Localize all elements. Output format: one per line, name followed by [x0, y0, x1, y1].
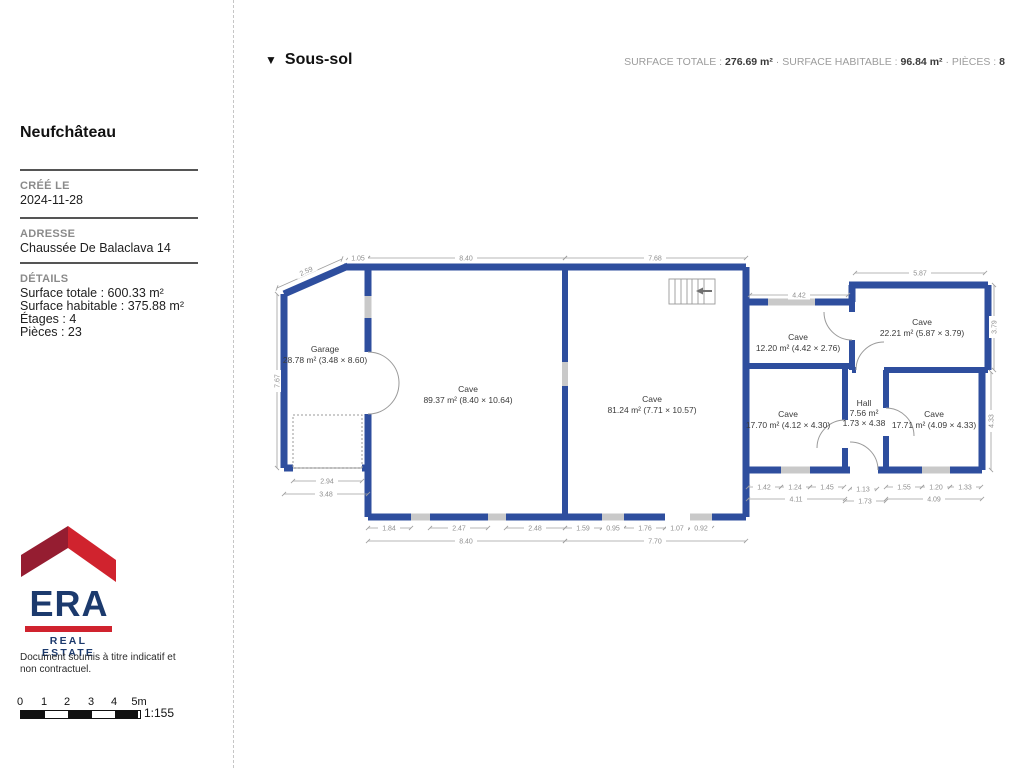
door-arcs [293, 312, 914, 470]
floor-title: Sous-sol [285, 51, 353, 69]
floor-section-toggle[interactable]: ▼ Sous-sol [265, 51, 352, 69]
room-area: 89.37 m² (8.40 × 10.64) [423, 395, 512, 405]
room-area: 28.78 m² (3.48 × 8.60) [283, 355, 368, 365]
dimension-label: 3.48 [319, 492, 333, 499]
created-value: 2024-11-28 [20, 193, 83, 207]
details-label: DÉTAILS [20, 273, 68, 285]
stat-pieces: PIÈCES : 8 [943, 56, 1005, 68]
dimension-label: 7.70 [648, 539, 662, 546]
dimension-label: 1.84 [382, 526, 396, 533]
era-logo-bar [25, 626, 112, 632]
dimension-label: 4.11 [789, 497, 802, 504]
dimension-label: 1.55 [897, 485, 911, 492]
sidebar: Neufchâteau CRÉÉ LE 2024-11-28 ADRESSE C… [0, 0, 233, 768]
dimension-label: 8.40 [459, 256, 473, 263]
dimension-label: 2.48 [528, 526, 542, 533]
dimension-label: 4.09 [927, 497, 941, 504]
dimension-label: 4.33 [989, 414, 996, 428]
address-label: ADRESSE [20, 228, 75, 240]
address-value: Chaussée De Balaclava 14 [20, 241, 171, 255]
stat-surface-totale: SURFACE TOTALE : 276.69 m² [624, 56, 773, 68]
floor-stats: SURFACE TOTALE : 276.69 m²SURFACE HABITA… [624, 56, 1005, 68]
divider [20, 169, 198, 171]
stairs-icon [669, 279, 715, 304]
room-name: Hall [857, 398, 872, 408]
detail-pieces: Pièces : 23 [20, 326, 184, 339]
room-labels: Garage 28.78 m² (3.48 × 8.60) Cave 89.37… [283, 317, 977, 430]
dimension-label: 1.20 [929, 485, 943, 492]
scale-tick: 4 [111, 696, 117, 708]
dimension-label: 0.95 [606, 526, 620, 533]
sidebar-separator [233, 0, 234, 768]
dimension-label: 0.92 [694, 526, 708, 533]
scale-tick: 2 [64, 696, 70, 708]
room-area: 17.71 m² (4.09 × 4.33) [892, 420, 977, 430]
parking-outline [293, 415, 362, 468]
room-area: 81.24 m² (7.71 × 10.57) [607, 405, 696, 415]
details-list: Surface totale : 600.33 m² Surface habit… [20, 287, 184, 339]
dimension-label: 5.87 [913, 271, 927, 278]
dimension-label: 1.07 [670, 526, 684, 533]
dimension-labels: 2.59 1.05 8.40 7.68 4.42 5.87 7.67 3.79 … [272, 254, 999, 546]
dimension-label: 1.24 [788, 485, 802, 492]
dimension-label: 2.94 [320, 479, 334, 486]
created-label: CRÉÉ LE [20, 180, 70, 192]
dimension-label: 1.73 [858, 499, 872, 506]
property-title: Neufchâteau [20, 124, 116, 142]
stat-surface-habitable: SURFACE HABITABLE : 96.84 m² [773, 56, 943, 68]
dimension-label: 7.68 [648, 256, 662, 263]
room-name: Cave [924, 409, 944, 419]
scale-ratio: 1:155 [144, 706, 174, 720]
scale-bar [20, 710, 141, 719]
dimension-label: 1.33 [958, 485, 972, 492]
room-area: 17.70 m² (4.12 × 4.30) [746, 420, 831, 430]
walls [284, 266, 988, 517]
dimension-label: 1.59 [576, 526, 590, 533]
room-name: Cave [788, 332, 808, 342]
room-size: 1.73 × 4.38 [843, 418, 886, 428]
divider [20, 217, 198, 219]
era-roof-icon [21, 526, 116, 586]
dimension-label: 1.05 [351, 256, 365, 263]
scale-tick: 1 [41, 696, 47, 708]
disclaimer-text: Document soumis à titre indicatif et non… [20, 652, 195, 676]
dimension-label: 3.79 [992, 320, 999, 334]
room-area: 12.20 m² (4.42 × 2.76) [756, 343, 841, 353]
divider [20, 262, 198, 264]
scale-tick: 3 [88, 696, 94, 708]
dimension-label: 1.76 [638, 526, 652, 533]
room-area: 22.21 m² (5.87 × 3.79) [880, 328, 965, 338]
dimension-label: 2.59 [299, 266, 314, 278]
room-name: Cave [642, 394, 662, 404]
era-logo-text: ERA [24, 583, 114, 625]
room-area: 7.56 m² [850, 408, 879, 418]
chevron-down-icon: ▼ [265, 53, 277, 67]
room-name: Cave [912, 317, 932, 327]
room-name: Cave [458, 384, 478, 394]
dimension-label: 7.67 [275, 374, 282, 388]
dimension-label: 1.13 [856, 487, 870, 494]
scale-tick: 0 [17, 696, 23, 708]
dimension-label: 8.40 [459, 539, 473, 546]
dimension-label: 1.42 [757, 485, 771, 492]
dimension-label: 2.47 [452, 526, 466, 533]
dimension-label: 1.45 [820, 485, 834, 492]
floor-plan: 2.59 1.05 8.40 7.68 4.42 5.87 7.67 3.79 … [240, 245, 1024, 555]
room-name: Cave [778, 409, 798, 419]
dimension-label: 4.42 [792, 293, 806, 300]
room-name: Garage [311, 344, 340, 354]
